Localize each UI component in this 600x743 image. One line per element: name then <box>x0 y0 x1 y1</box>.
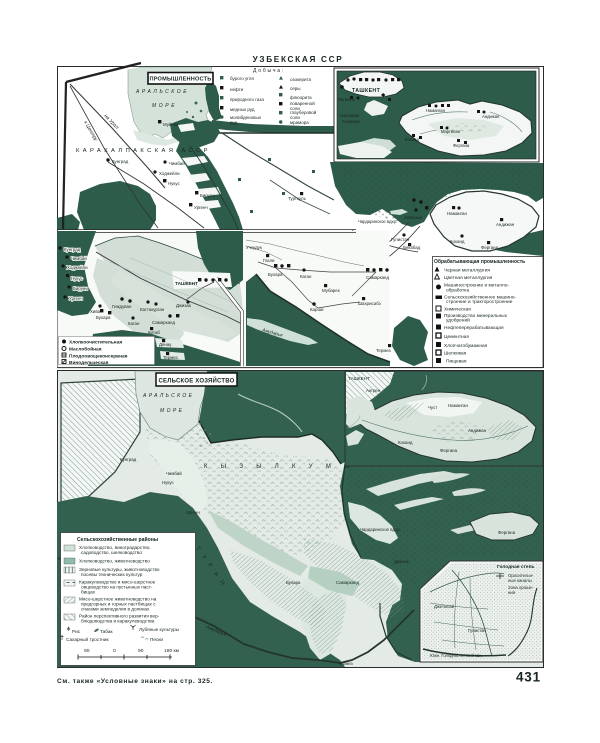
svg-text:УЗБЕКСКАЯ ССР: УЗБЕКСКАЯ ССР <box>253 55 344 64</box>
svg-text:Ходжейли: Ходжейли <box>159 171 180 176</box>
svg-text:Гулистан: Гулистан <box>468 628 486 633</box>
svg-text:Фергана: Фергана <box>481 245 499 250</box>
svg-text:Наманган: Наманган <box>426 108 446 113</box>
svg-text:Ургенч: Ургенч <box>194 205 208 210</box>
svg-text:серы: серы <box>290 86 301 91</box>
svg-text:АРАЛЬСКОЕ: АРАЛЬСКОЕ <box>135 89 189 95</box>
svg-text:ТАШКЕНТ: ТАШКЕНТ <box>348 376 370 381</box>
svg-text:90: 90 <box>138 648 144 654</box>
svg-text:Карши: Карши <box>310 307 324 312</box>
svg-text:Плодоовощеконсервная: Плодоовощеконсервная <box>69 354 128 360</box>
svg-text:Черная металлургия: Черная металлургия <box>444 268 490 274</box>
svg-text:Коканд: Коканд <box>398 440 413 445</box>
svg-text:КАРАКАЛПАКСКАЯ АССР: КАРАКАЛПАКСКАЯ АССР <box>76 148 211 154</box>
svg-text:Бухара: Бухара <box>268 272 283 277</box>
svg-text:Добыча:: Добыча: <box>253 68 285 74</box>
svg-text:Каттакурган: Каттакурган <box>140 307 165 312</box>
svg-text:Янгиюль: Янгиюль <box>338 97 356 102</box>
svg-text:Каган: Каган <box>300 274 312 279</box>
svg-text:Ургенч: Ургенч <box>69 296 83 301</box>
svg-text:садоводство, шелководство: садоводство, шелководство <box>81 550 142 555</box>
svg-text:Джизак: Джизак <box>176 303 191 308</box>
svg-text:Маргилан: Маргилан <box>441 129 461 134</box>
svg-text:Нефтеперерабатывающая: Нефтеперерабатывающая <box>444 325 504 331</box>
svg-text:Термез: Термез <box>163 355 178 360</box>
svg-text:90: 90 <box>84 648 90 654</box>
svg-text:Ангрен: Ангрен <box>366 388 381 393</box>
svg-text:Цветная металлургия: Цветная металлургия <box>444 275 493 281</box>
svg-text:природного газа: природного газа <box>230 97 264 102</box>
svg-text:ТАШКЕНТ: ТАШКЕНТ <box>175 281 198 286</box>
svg-text:Фергана: Фергана <box>440 448 458 453</box>
svg-text:озокерита: озокерита <box>290 77 312 82</box>
svg-text:Китаб: Китаб <box>148 330 160 335</box>
svg-text:Кунград: Кунград <box>64 247 81 252</box>
svg-text:бищах: бищах <box>81 590 96 595</box>
svg-text:обработка: обработка <box>446 288 469 294</box>
svg-text:Хлопчатобумажная: Хлопчатобумажная <box>444 343 488 349</box>
svg-text:Фергана: Фергана <box>498 530 516 535</box>
svg-text:Коканд: Коканд <box>405 137 419 142</box>
svg-text:Цементная: Цементная <box>444 334 469 340</box>
svg-text:удобрений: удобрений <box>446 317 470 324</box>
svg-text:Хива: Хива <box>90 309 101 314</box>
svg-text:Чимбай: Чимбай <box>166 471 182 476</box>
svg-text:Ходжейли: Ходжейли <box>67 265 88 270</box>
svg-text:Андижан: Андижан <box>482 114 500 119</box>
svg-text:МОРЕ: МОРЕ <box>152 103 177 109</box>
svg-text:Чимбай: Чимбай <box>71 256 87 261</box>
svg-text:Денау: Денау <box>159 342 172 347</box>
svg-text:Гиждуван: Гиждуван <box>112 304 132 309</box>
svg-text:Муйнак: Муйнак <box>163 122 178 127</box>
svg-text:Андижан: Андижан <box>468 428 487 433</box>
svg-text:Наманган: Наманган <box>447 211 467 216</box>
svg-text:блюдоводства и каракулеводства: блюдоводства и каракулеводства <box>81 619 155 624</box>
svg-text:МОРЕ: МОРЕ <box>160 408 184 414</box>
svg-text:Джизак: Джизак <box>394 559 409 564</box>
svg-text:Бируни: Бируни <box>73 286 88 291</box>
svg-text:ные каналы: ные каналы <box>508 578 532 583</box>
svg-text:Бируни: Бируни <box>200 193 215 198</box>
svg-text:Самарканд: Самарканд <box>152 320 175 325</box>
svg-text:Химическая: Химическая <box>444 307 471 313</box>
svg-text:Хлопководство, животноводство: Хлопководство, животноводство <box>79 559 150 564</box>
svg-text:Бухара: Бухара <box>286 580 301 585</box>
svg-text:К Ы З Ы Л К У М Ы: К Ы З Ы Л К У М Ы <box>204 464 355 470</box>
svg-text:Каган: Каган <box>128 321 140 326</box>
svg-text:Винодельческая: Винодельческая <box>69 360 109 366</box>
svg-text:Бекабад: Бекабад <box>403 245 421 250</box>
svg-text:Хлопкоочистительная: Хлопкоочистительная <box>69 340 122 346</box>
svg-text:Газли: Газли <box>263 258 275 263</box>
svg-text:Нукус: Нукус <box>71 276 83 281</box>
svg-text:нефти: нефти <box>230 87 244 92</box>
svg-text:Южн. Голодностепский кан.: Южн. Голодностепский кан. <box>430 653 483 658</box>
svg-text:Сельскохозяйственные районы: Сельскохозяйственные районы <box>77 536 158 543</box>
svg-text:Самарканд: Самарканд <box>336 580 359 585</box>
svg-text:бурого угля: бурого угля <box>230 76 254 81</box>
svg-text:Самарканд: Самарканд <box>366 275 389 280</box>
svg-text:Рис: Рис <box>72 629 81 634</box>
svg-text:Ургенч: Ургенч <box>186 510 200 515</box>
svg-text:посевы технических культур: посевы технических культур <box>81 572 143 577</box>
svg-text:Чуст: Чуст <box>428 405 437 410</box>
svg-text:СЕЛЬСКОЕ ХОЗЯЙСТВО: СЕЛЬСКОЕ ХОЗЯЙСТВО <box>158 377 234 385</box>
svg-text:Кунград: Кунград <box>120 457 137 462</box>
svg-text:Турткуль: Турткуль <box>288 196 307 201</box>
svg-text:ния: ния <box>508 590 516 595</box>
svg-text:мрамора: мрамора <box>290 120 309 125</box>
svg-text:флюорита: флюорита <box>290 95 312 100</box>
svg-text:Коканд: Коканд <box>450 239 465 244</box>
svg-text:руд: руд <box>230 120 238 125</box>
svg-text:Сахарный тростник: Сахарный тростник <box>66 636 109 642</box>
svg-text:Бухара: Бухара <box>96 315 111 320</box>
svg-text:Чардаринское вдхр.: Чардаринское вдхр. <box>360 527 401 532</box>
svg-text:строение и тракторостроение: строение и тракторостроение <box>446 300 513 305</box>
svg-text:Шахрисабз: Шахрисабз <box>358 301 381 306</box>
svg-text:Пищевая: Пищевая <box>446 359 467 365</box>
svg-text:Фергана: Фергана <box>453 143 470 148</box>
svg-text:Пески: Пески <box>150 637 163 642</box>
svg-text:Обрабатывающая промышленность: Обрабатывающая промышленность <box>434 258 525 265</box>
svg-text:Алмалык: Алмалык <box>404 215 422 220</box>
svg-text:Шелковая: Шелковая <box>444 351 467 357</box>
svg-text:Нукус: Нукус <box>168 181 180 186</box>
svg-text:Чардаринское вдхр.: Чардаринское вдхр. <box>358 219 397 224</box>
svg-text:Алмалык: Алмалык <box>342 119 360 124</box>
svg-text:Джетысай: Джетысай <box>434 604 455 609</box>
svg-text:АРАЛЬСКОЕ: АРАЛЬСКОЕ <box>142 393 194 399</box>
svg-text:Термез: Термез <box>376 348 391 353</box>
svg-text:Чимбай: Чимбай <box>169 161 185 166</box>
svg-text:ПРОМЫШЛЕННОСТЬ: ПРОМЫШЛЕННОСТЬ <box>149 77 211 83</box>
svg-text:0: 0 <box>113 648 116 654</box>
svg-text:Голодная степь: Голодная степь <box>497 564 534 570</box>
svg-text:Наманган: Наманган <box>448 403 468 408</box>
svg-text:Мубарек: Мубарек <box>322 288 340 293</box>
svg-text:Кунград: Кунград <box>112 159 129 164</box>
svg-text:См. также «Условные знаки»: См. также «Условные знаки» на стр. 325. <box>57 678 213 685</box>
svg-text:180 км: 180 км <box>164 648 180 654</box>
svg-text:Табак: Табак <box>100 629 113 634</box>
svg-text:ТАШКЕНТ: ТАШКЕНТ <box>352 88 381 94</box>
svg-text:Маслобойная: Маслобойная <box>69 346 102 353</box>
svg-text:Лубяные культуры: Лубяные культуры <box>139 627 180 632</box>
svg-text:Нукус: Нукус <box>162 480 174 485</box>
svg-text:Ахангаран: Ахангаран <box>339 113 360 118</box>
svg-text:Андижан: Андижан <box>496 222 515 227</box>
svg-text:Учкудук: Учкудук <box>246 245 262 250</box>
svg-text:431: 431 <box>516 670 541 685</box>
svg-text:медных руд: медных руд <box>230 107 255 112</box>
svg-text:очагами земледелия в долинах: очагами земледелия в долинах <box>81 607 150 612</box>
